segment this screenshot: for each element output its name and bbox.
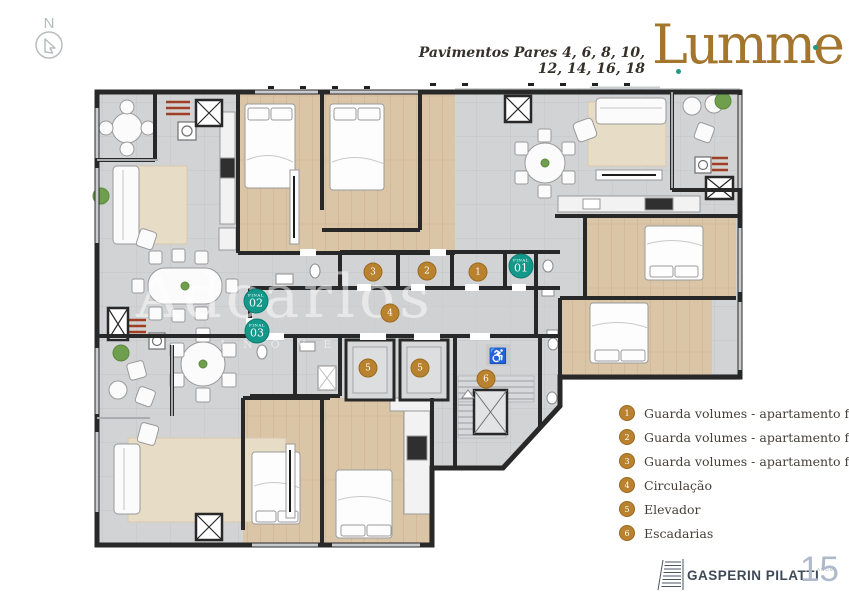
legend-label: Guarda volumes - apartamento final 01	[644, 406, 849, 421]
storage-badge-1: 1	[469, 263, 488, 282]
legend-bullet: 5	[619, 501, 635, 517]
svg-text:♿: ♿	[489, 347, 508, 365]
brand-accent-dot-left	[676, 69, 681, 74]
unit-badge-number: 02	[249, 298, 263, 309]
legend-bullet: 4	[619, 477, 635, 493]
stairs-badge: 6	[477, 370, 496, 389]
badge-number: 2	[424, 266, 430, 276]
anniversary-caption: ANOS	[817, 567, 834, 572]
brand-accent-dot-right	[813, 45, 818, 50]
legend-label: Guarda volumes - apartamento final 02	[644, 430, 849, 445]
legend-item-stairs: 6 Escadarias	[619, 525, 849, 541]
unit-badge-02: final 02	[244, 289, 269, 314]
storage-badge-3: 3	[364, 263, 383, 282]
badge-number: 4	[387, 308, 393, 318]
north-compass-icon: N	[36, 15, 62, 58]
brand-logo: Lumme	[652, 16, 827, 74]
legend-bullet: 2	[619, 429, 635, 445]
svg-text:N: N	[44, 15, 55, 32]
corner-patch-2	[432, 468, 457, 548]
badge-number: 5	[417, 363, 423, 373]
unit-badge-01: final 01	[509, 254, 534, 279]
badge-number: 6	[483, 374, 489, 384]
badge-number: 5	[365, 363, 371, 373]
legend-bullet: 6	[619, 525, 635, 541]
unit-badge-03: final 03	[245, 319, 270, 344]
badge-number: 1	[475, 267, 481, 277]
legend: 1 Guarda volumes - apartamento final 01 …	[619, 405, 849, 549]
legend-item-elevator: 5 Elevador	[619, 501, 849, 517]
storage-badge-2: 2	[418, 262, 437, 281]
badge-number: 3	[370, 267, 376, 277]
legend-item-storage-03: 3 Guarda volumes - apartamento final 03	[619, 453, 849, 469]
elevator-badge-right: 5	[411, 359, 430, 378]
legend-bullet: 1	[619, 405, 635, 421]
legend-item-storage-01: 1 Guarda volumes - apartamento final 01	[619, 405, 849, 421]
elevator-badge-left: 5	[359, 359, 378, 378]
accessibility-icon: ♿	[486, 344, 510, 366]
legend-label: Elevador	[644, 502, 701, 517]
legend-bullet: 3	[619, 453, 635, 469]
floors-subtitle: Pavimentos Pares 4, 6, 8, 10, 12, 14, 16…	[400, 45, 645, 77]
legend-label: Guarda volumes - apartamento final 03	[644, 454, 849, 469]
legend-item-circulation: 4 Circulação	[619, 477, 849, 493]
legend-item-storage-02: 2 Guarda volumes - apartamento final 02	[619, 429, 849, 445]
unit-badge-number: 01	[514, 263, 528, 274]
developer-logo: GASPERIN PILATTI 15 ANOS	[650, 550, 845, 595]
circulation-badge: 4	[381, 304, 400, 323]
unit-badge-number: 03	[250, 328, 264, 339]
floor-plan-page: ♿ N Adcarlos INOVE 3 2 1 4 5 5 6 final 0…	[0, 0, 849, 600]
legend-label: Escadarias	[644, 526, 713, 541]
legend-label: Circulação	[644, 478, 712, 493]
